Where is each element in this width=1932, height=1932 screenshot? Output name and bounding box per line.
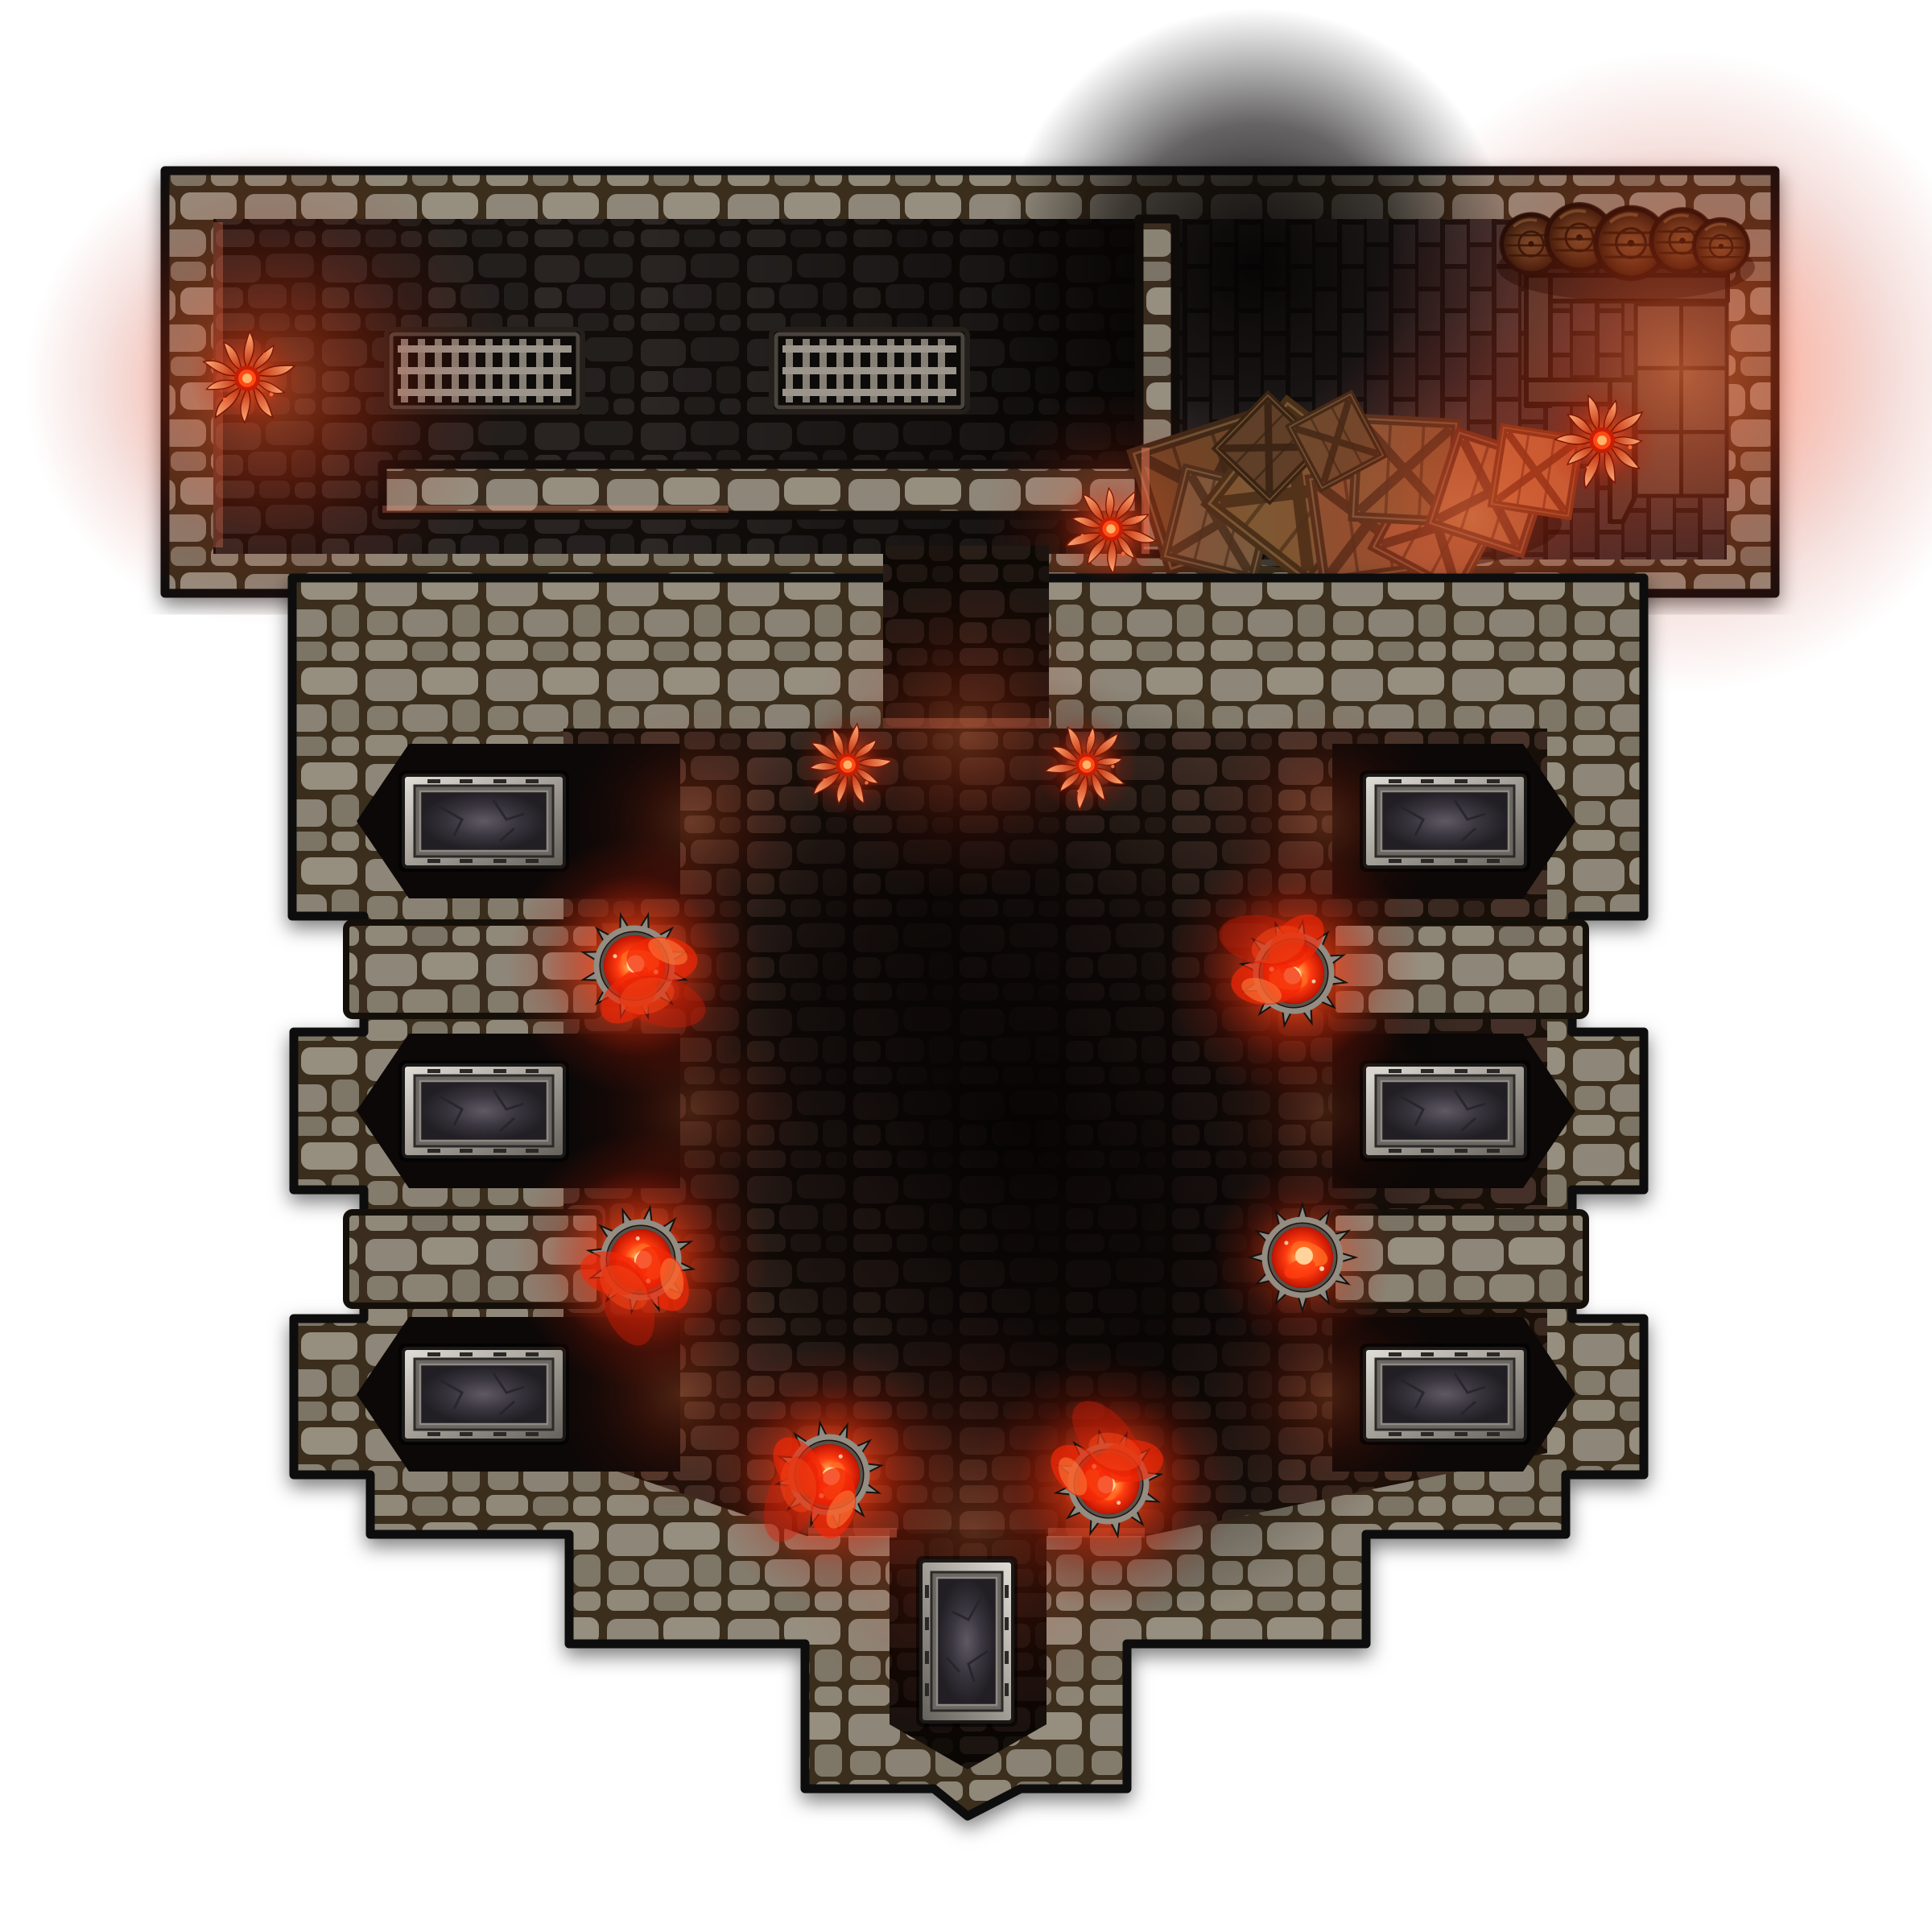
- dungeon-battle-map: [0, 0, 1932, 1932]
- sarcophagus: [916, 1556, 1018, 1727]
- sarcophagus: [1360, 1060, 1530, 1162]
- sarcophagus: [398, 1344, 569, 1445]
- sarcophagus: [398, 1060, 569, 1162]
- sarcophagus: [1360, 770, 1530, 872]
- fire-creature-token[interactable]: [189, 320, 305, 436]
- sarcophagus: [1360, 1344, 1530, 1445]
- fire-brazier: [1210, 1165, 1395, 1350]
- sarcophagus: [398, 770, 569, 872]
- floor-grate: [771, 329, 968, 412]
